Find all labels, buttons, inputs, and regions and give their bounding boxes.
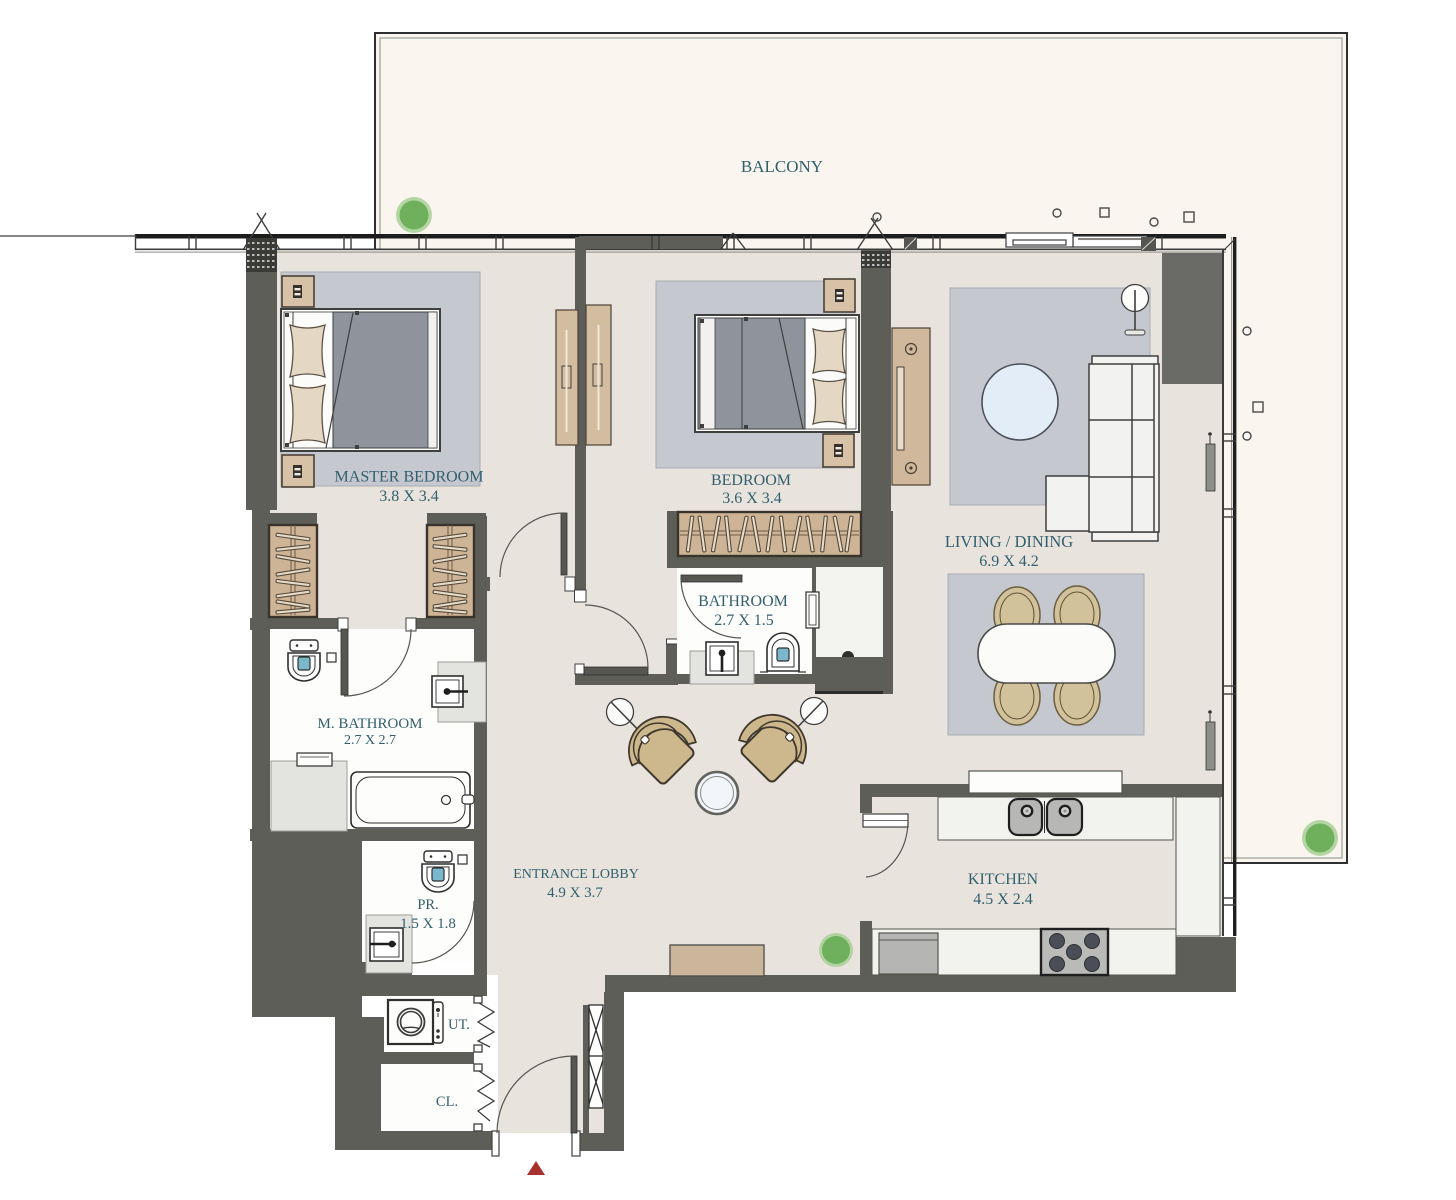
svg-text:M. BATHROOM: M. BATHROOM [317, 716, 422, 732]
svg-text:UT.: UT. [448, 1017, 470, 1033]
svg-text:6.9 X 4.2: 6.9 X 4.2 [979, 553, 1039, 570]
svg-text:4.9 X 3.7: 4.9 X 3.7 [547, 885, 603, 901]
svg-text:LIVING / DINING: LIVING / DINING [945, 532, 1073, 551]
svg-text:3.8 X 3.4: 3.8 X 3.4 [379, 488, 439, 505]
svg-text:BALCONY: BALCONY [741, 157, 823, 176]
svg-text:2.7 X 2.7: 2.7 X 2.7 [344, 733, 396, 748]
svg-text:BEDROOM: BEDROOM [711, 472, 791, 489]
svg-text:MASTER BEDROOM: MASTER BEDROOM [335, 469, 484, 486]
svg-text:PR.: PR. [417, 897, 438, 913]
svg-text:4.5 X 2.4: 4.5 X 2.4 [973, 891, 1033, 908]
svg-text:KITCHEN: KITCHEN [968, 871, 1039, 888]
svg-text:CL.: CL. [436, 1094, 458, 1110]
svg-text:3.6 X 3.4: 3.6 X 3.4 [722, 490, 782, 507]
svg-text:2.7 X 1.5: 2.7 X 1.5 [714, 612, 774, 629]
svg-text:ENTRANCE LOBBY: ENTRANCE LOBBY [513, 867, 639, 882]
svg-text:1.5 X 1.8: 1.5 X 1.8 [400, 916, 456, 932]
svg-text:BATHROOM: BATHROOM [698, 593, 788, 610]
